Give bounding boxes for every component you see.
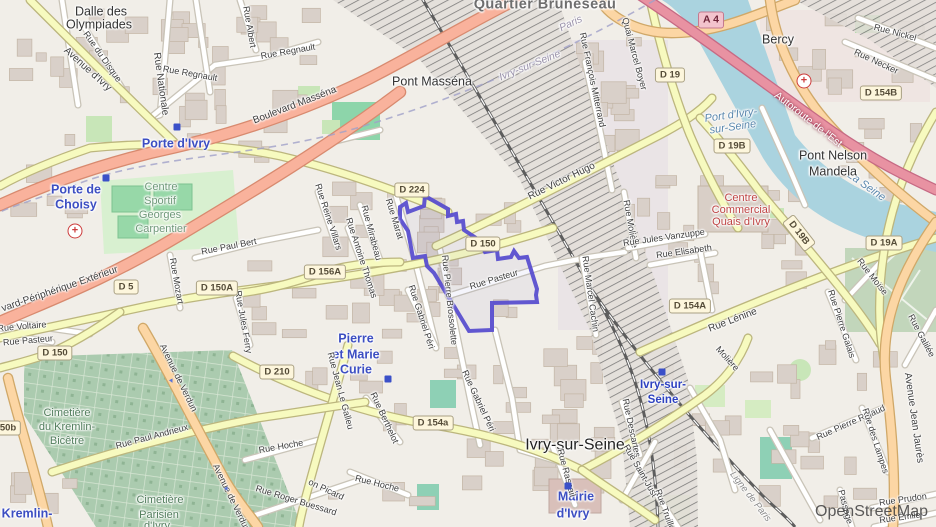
- street-label: Rue Voltaire: [0, 320, 47, 334]
- street-label: Rue Pierre Brossolette: [440, 254, 459, 345]
- mot-label: Autoroute de l'Est: [772, 90, 844, 150]
- street-label: Quai Marcel Boyer: [620, 17, 648, 91]
- street-label: Rue François Mitterrand: [577, 32, 606, 128]
- green-label: Parisien: [139, 510, 179, 522]
- town-label: Olympiades: [66, 18, 132, 31]
- map-labels-layer: Dalle desOlympiadesAvenue d'IvryRue du D…: [0, 0, 936, 527]
- street-label: Rue Gabriel Péri: [406, 284, 436, 350]
- water-label: Port d'Ivry-: [704, 107, 758, 126]
- street-label: Rue Paul Bert: [201, 237, 258, 257]
- road-ref-shield: D 19B: [782, 214, 817, 252]
- street-label: Rue Raspail: [555, 448, 577, 498]
- road-ref-shield: D 156A: [304, 265, 346, 280]
- place-label: Pierre: [338, 332, 373, 345]
- city-label: Ivry-sur-Seine: [525, 438, 625, 455]
- hospital-icon: +: [797, 74, 812, 89]
- street-label: Rue Albert: [241, 5, 258, 48]
- bound-label: Paris: [558, 14, 584, 34]
- road-ref-shield: D 154a: [413, 416, 454, 431]
- street-label: Rue Roger Buessard: [254, 484, 337, 518]
- road-ref-shield: D 19A: [866, 236, 903, 251]
- road-ref-shield: D 19: [655, 68, 685, 83]
- street-label: Boulevard Masséna: [252, 85, 338, 126]
- metro-icon: [659, 369, 666, 376]
- street-label: Rue Jean Le Galleu: [325, 351, 355, 430]
- street-label: Avenue de Verdun: [211, 463, 252, 527]
- road-ref-shield: D 5: [114, 280, 139, 295]
- street-label: Avenue d'Ivry: [61, 46, 113, 94]
- place-label: et Marie: [332, 348, 379, 361]
- street-label: Rue Marat: [383, 198, 404, 241]
- street-label: on Picard: [307, 478, 345, 503]
- street-label: Rue Elisabeth: [656, 243, 713, 260]
- place-label: Porte d'Ivry: [142, 137, 210, 150]
- street-label: Rue Nickel: [873, 23, 917, 43]
- green-label: d'Ivry: [144, 521, 170, 527]
- road-ref-shield: D 150A: [196, 281, 238, 296]
- street-label: Molière: [714, 345, 741, 373]
- metro-icon: [565, 483, 572, 490]
- street-label: Rue Regnault: [260, 43, 316, 62]
- red-label: Quais d'Ivry: [712, 217, 770, 229]
- town-label: Mandela: [809, 165, 857, 178]
- station-label: Ivry-sur-: [640, 379, 686, 391]
- place-label: Porte de: [51, 183, 101, 196]
- street-label: Rue Gabriel Péri: [460, 369, 497, 433]
- hospital-icon: +: [68, 224, 83, 239]
- place-label: d'Ivry: [557, 507, 590, 520]
- road-ref-shield: D 210: [259, 365, 294, 380]
- town-label: Dalle des: [75, 5, 127, 18]
- street-label: Rue Hoche: [354, 474, 400, 494]
- road-ref-shield: D 150: [465, 237, 500, 252]
- arrow-icon: ▸: [222, 485, 232, 493]
- street-label: Rue Descartes: [620, 398, 642, 458]
- street-label: Rue Antoine Thomas: [344, 217, 379, 300]
- station-label: Seine: [648, 394, 679, 406]
- road-ref-shield: A 4: [698, 12, 724, 29]
- metro-icon: [103, 175, 110, 182]
- street-label: Rue Mozart: [167, 257, 184, 304]
- street-label: Rue Pasteur: [469, 268, 520, 292]
- street-label: Rue du Disque: [81, 30, 123, 84]
- street-label: Rue Pierre Galais: [826, 289, 857, 359]
- attribution-link[interactable]: OpenStreetMap: [815, 503, 928, 521]
- town-label: Pont Nelson: [799, 149, 867, 162]
- red-label: Centre: [724, 193, 757, 205]
- street-label: Rue Lénine: [707, 307, 759, 335]
- road-ref-shield: 50b: [0, 421, 21, 436]
- town-label: Pont Masséna: [392, 75, 472, 88]
- road-ref-shield: D 224: [394, 183, 429, 198]
- road-ref-shield: D 154B: [860, 86, 902, 101]
- quarter-label: Quartier Bruneseau: [474, 0, 617, 13]
- metro-icon: [174, 124, 181, 131]
- map-canvas[interactable]: Dalle desOlympiadesAvenue d'IvryRue du D…: [0, 0, 936, 527]
- street-label: Rue Necker: [852, 48, 899, 77]
- street-label: Rue Regnault: [162, 65, 218, 84]
- metro-icon: [385, 376, 392, 383]
- street-label: Rue Victor Hugo: [527, 161, 597, 203]
- street-label: Rue des Lampes: [860, 407, 890, 475]
- street-label: Rue Mirabeau: [359, 204, 383, 261]
- road-ref-shield: D 150: [37, 346, 72, 361]
- rail-label: Ligne de Paris: [727, 470, 772, 524]
- bound-label: Ivry-sur-Seine: [498, 49, 563, 84]
- street-label: Rue Hoche: [258, 438, 304, 455]
- red-label: Commercial: [712, 205, 771, 217]
- street-label: Rue Reine Villars: [313, 183, 343, 252]
- street-label: Rue Galilée: [906, 313, 936, 359]
- place-label: Mairie: [558, 490, 594, 503]
- street-label: Avenue de Verdun: [158, 343, 199, 414]
- green-label: du Kremlin-: [39, 422, 95, 434]
- street-label: Rue Paul Andrieux: [115, 423, 189, 451]
- street-label: Rue Moïse: [855, 257, 889, 297]
- place-label: Curie: [340, 363, 372, 376]
- street-label: Rue Marcel Cachin: [580, 255, 600, 332]
- road-ref-shield: D 154A: [669, 299, 711, 314]
- place-label: Choisy: [55, 198, 97, 211]
- street-label: Avenue Jean Jaurès: [901, 372, 924, 464]
- street-label: Rue Molière: [621, 199, 639, 248]
- sport-label: Georges: [139, 210, 181, 222]
- arrow-icon: ▸: [167, 377, 177, 385]
- water-label: La Seine: [845, 170, 887, 204]
- green-label: Bicêtre: [50, 436, 84, 448]
- street-label: Rue Pierre Rigaud: [815, 404, 886, 443]
- sport-label: Carpentier: [135, 224, 186, 236]
- street-label: vard-Périphérique Extérieur: [0, 265, 119, 315]
- street-label: Rue Nationale: [150, 52, 169, 116]
- street-label: Rue Jules Vanzuppe: [623, 228, 706, 249]
- sport-label: Sportif: [144, 196, 176, 208]
- green-label: Cimetière: [43, 408, 90, 420]
- street-label: Rue Truillot: [653, 488, 677, 527]
- street-label: Rue Berthelot: [368, 391, 400, 445]
- place-label: Le Kremlin-: [0, 507, 52, 520]
- water-label: sur-Seine: [709, 119, 757, 137]
- town-label: Bercy: [762, 33, 794, 46]
- street-label: Rue Jules Ferry: [233, 290, 253, 354]
- green-label: Cimetière: [136, 495, 183, 507]
- sport-label: Centre: [144, 182, 177, 194]
- street-label: Rue Saint-Just: [621, 443, 659, 499]
- road-ref-shield: D 19B: [714, 139, 751, 154]
